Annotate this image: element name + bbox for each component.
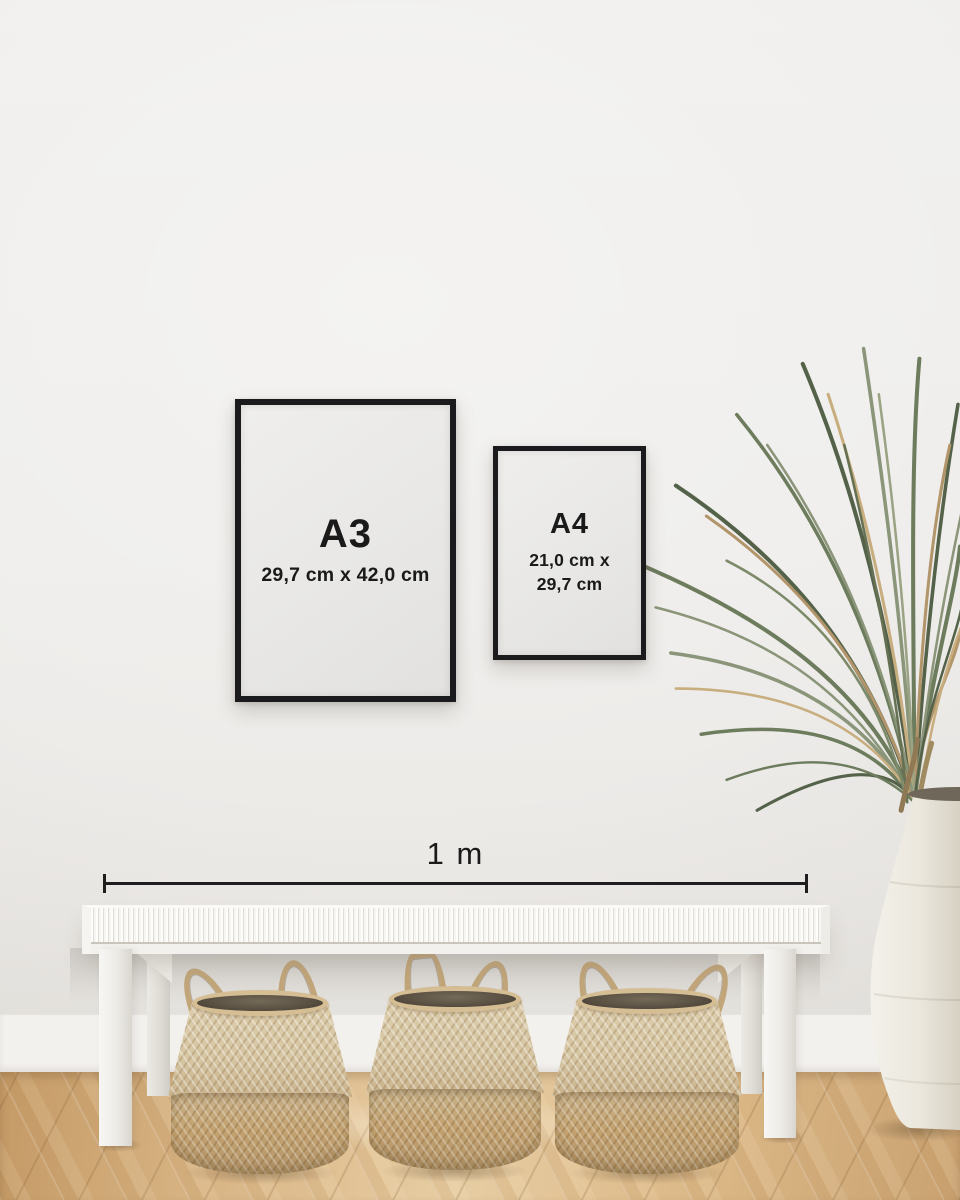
room-scene: A3 29,7 cm x 42,0 cm A4 21,0 cm x 29,7 c… [0, 0, 960, 1200]
a3-dimensions: 29,7 cm x 42,0 cm [261, 564, 429, 587]
bench-leg-right-front [764, 949, 796, 1138]
bench-leg-left-front [99, 949, 132, 1146]
ceramic-vase [860, 786, 960, 1132]
palm-plant [615, 332, 960, 832]
a4-dimensions-line2: 29,7 cm [529, 572, 610, 597]
a3-poster: A3 29,7 cm x 42,0 cm [241, 405, 450, 696]
a4-dimensions-line1: 21,0 cm x [529, 548, 610, 573]
a4-dimensions: 21,0 cm x 29,7 cm [529, 548, 610, 597]
basket-rim [192, 990, 328, 1016]
a3-frame: A3 29,7 cm x 42,0 cm [235, 399, 456, 702]
seagrass-basket [168, 990, 352, 1174]
measurement-label: 1 m [103, 838, 808, 869]
bench-seat [82, 905, 830, 954]
a4-poster: A4 21,0 cm x 29,7 cm [498, 451, 641, 655]
seagrass-basket [552, 988, 742, 1174]
seagrass-basket [366, 986, 544, 1170]
measurement-line [103, 882, 808, 885]
a4-frame: A4 21,0 cm x 29,7 cm [493, 446, 646, 660]
basket-rim [389, 986, 521, 1012]
a3-size-label: A3 [319, 514, 372, 554]
measurement-scale: 1 m [103, 838, 808, 891]
basket-rim [577, 988, 718, 1014]
bench-leg-right-back [741, 949, 762, 1094]
basket-body [552, 1000, 742, 1174]
a4-size-label: A4 [550, 510, 589, 539]
basket-body [168, 1002, 352, 1174]
basket-body [366, 998, 544, 1170]
